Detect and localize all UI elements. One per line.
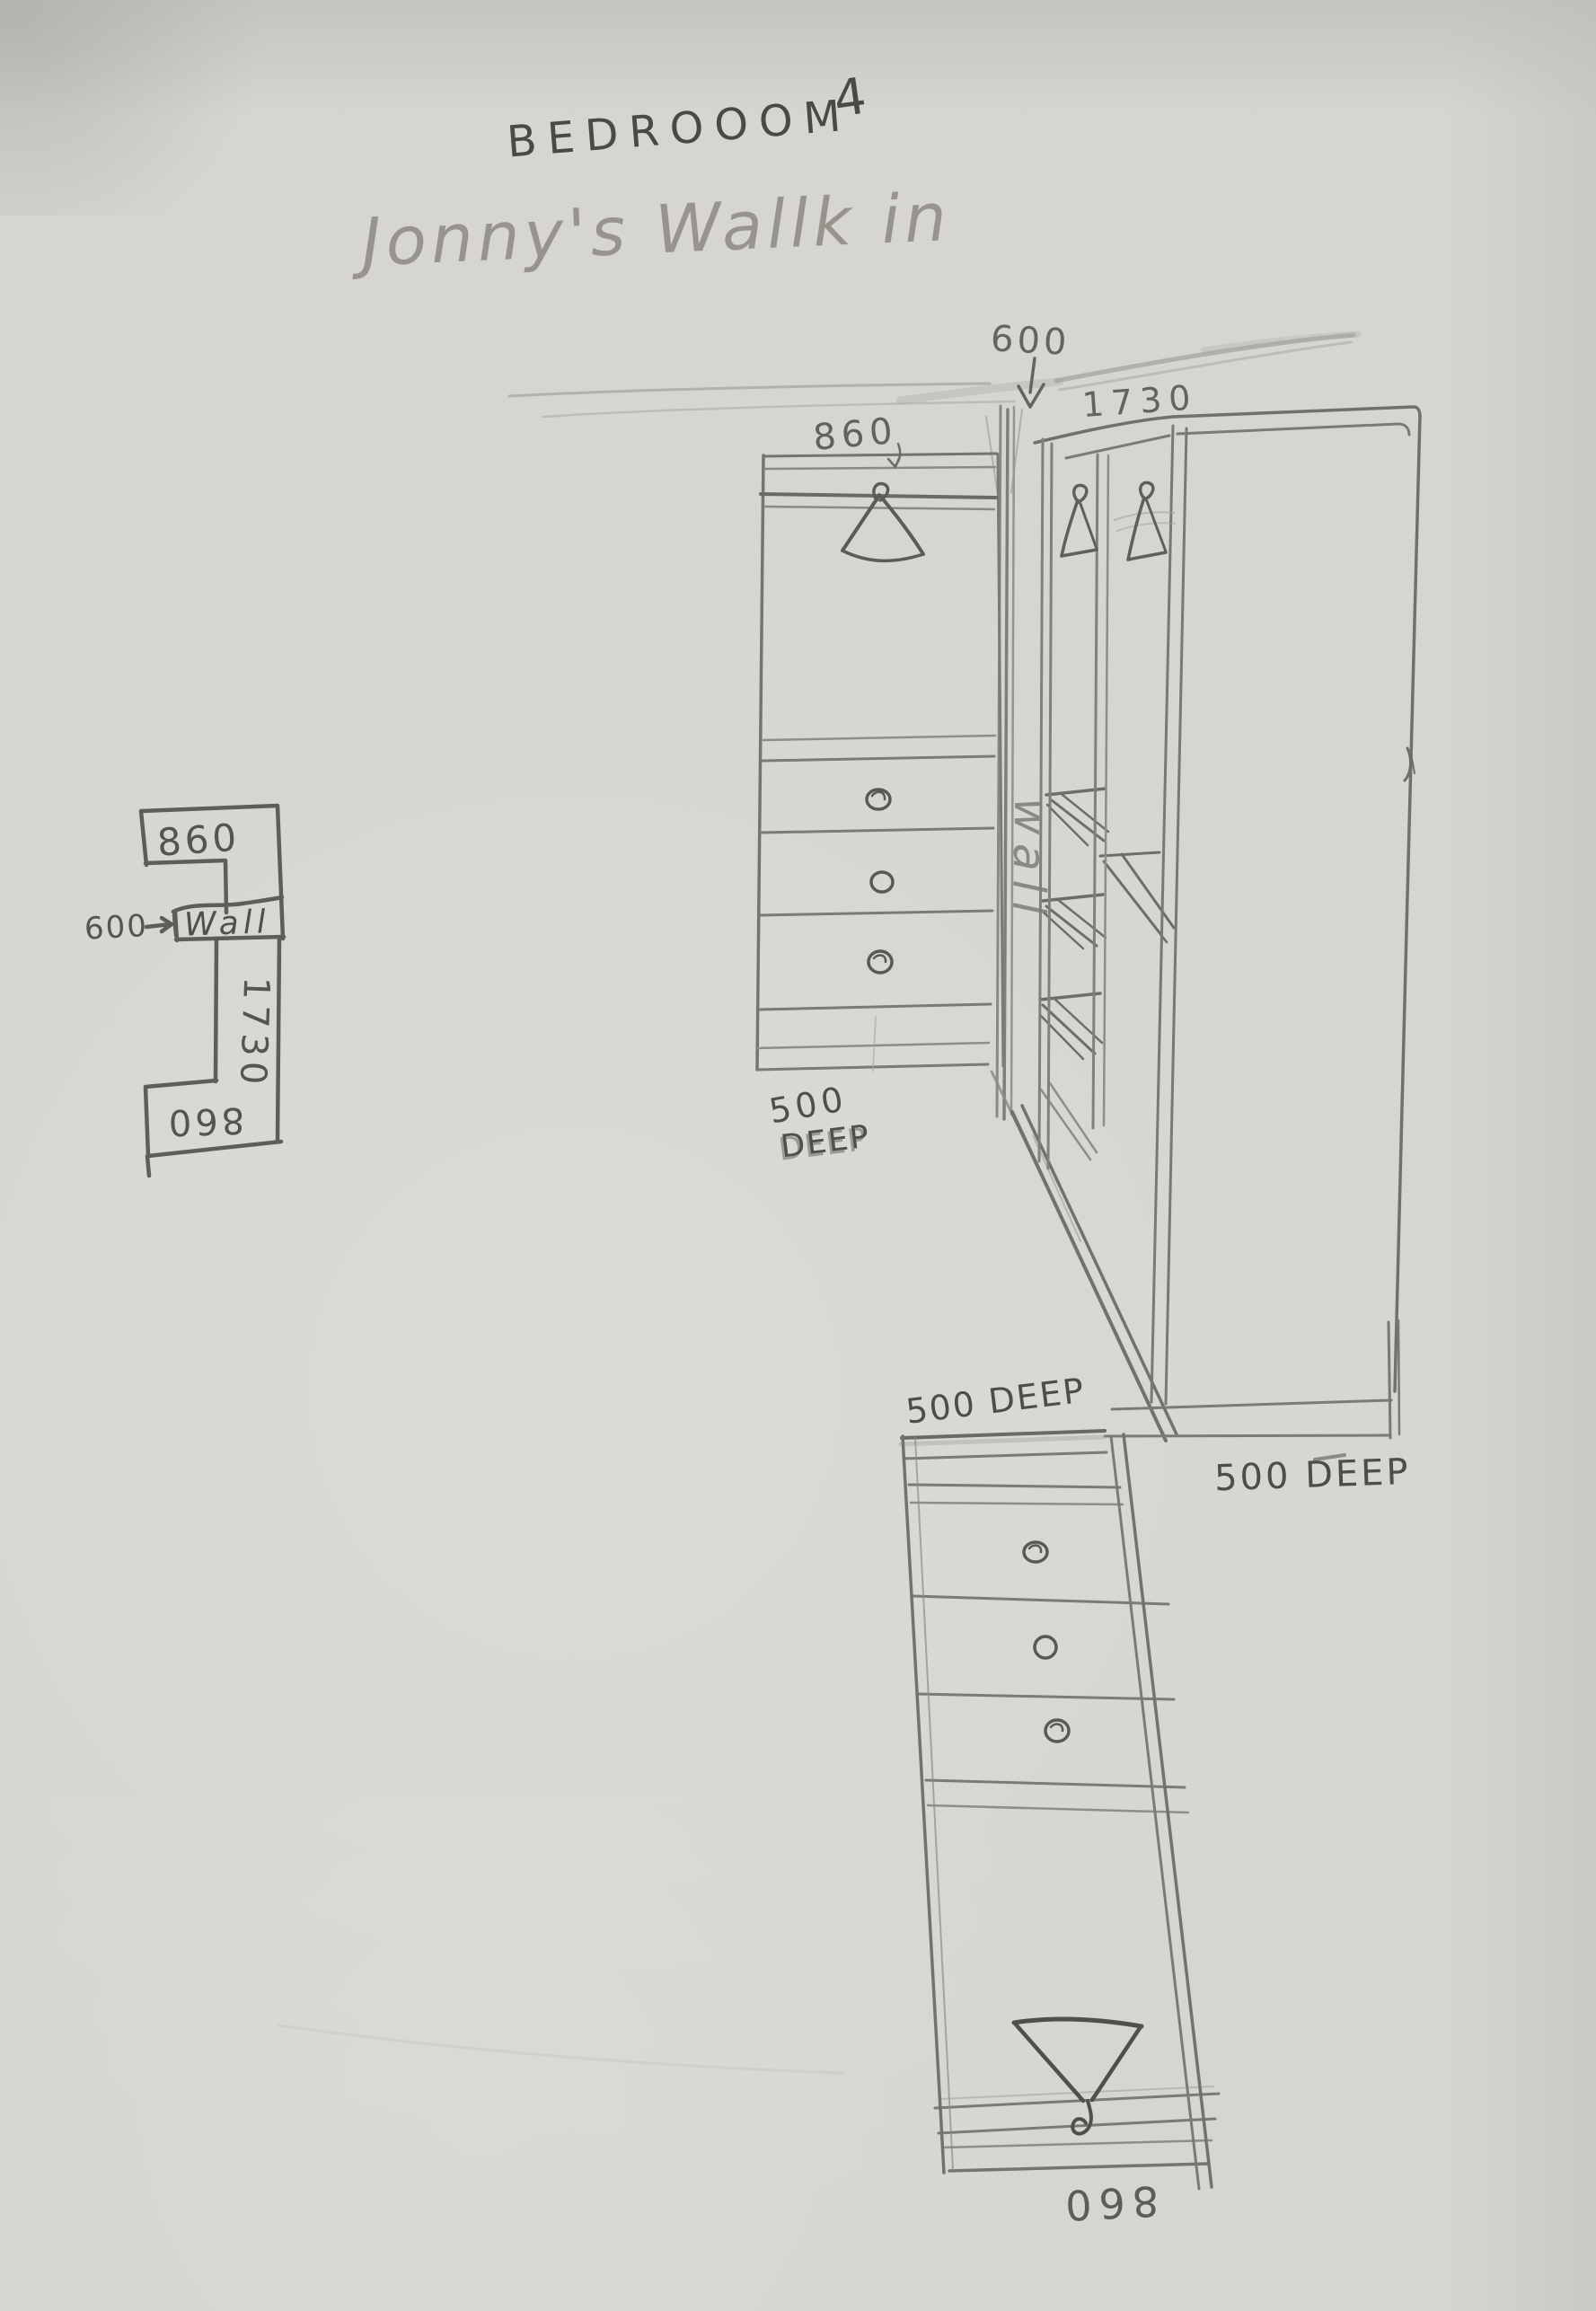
plan-bottom-width-label: 860	[164, 1098, 245, 1142]
plan-top-width-label: 860	[155, 815, 241, 864]
right-unit-depth-label: 500 DEEP	[1213, 1451, 1411, 1500]
right-unit-width-label: 1730	[1080, 377, 1198, 425]
plan-side-run-label: 1730	[232, 976, 277, 1090]
plan-doorway-width-label: 600	[84, 908, 149, 948]
plan-wall-label: Wall	[183, 904, 270, 943]
bottom-unit-width-label: 860	[1057, 2176, 1160, 2230]
sketch-photo: BEDROOOM 4 Jonny's Wallk in 860 600 Wall…	[0, 0, 1596, 2311]
left-unit-width-label: 860	[812, 410, 900, 459]
doorway-width-label: 600	[990, 318, 1071, 364]
